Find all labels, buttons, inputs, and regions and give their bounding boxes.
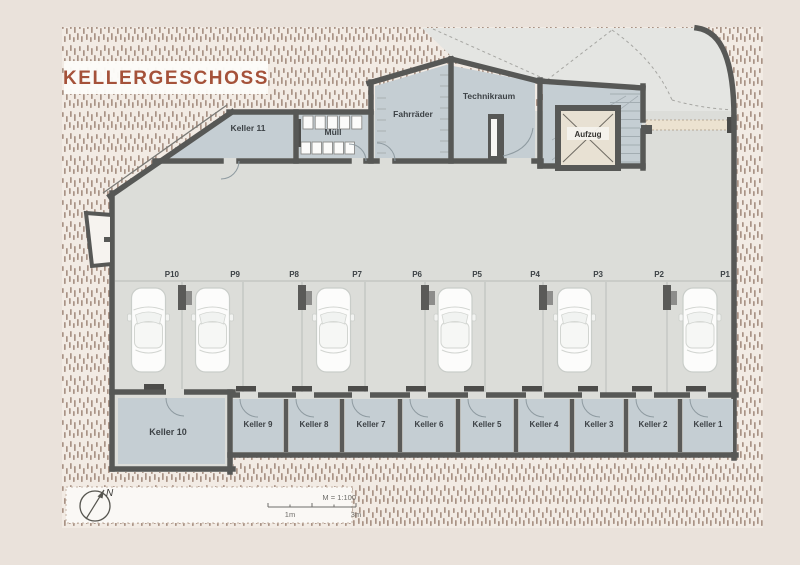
door-leaf xyxy=(348,386,368,392)
north-label: N xyxy=(106,488,114,499)
trash-bin-icon xyxy=(352,116,362,129)
door-leaf xyxy=(464,386,484,392)
door-leaf xyxy=(686,386,706,392)
keller-room-label: Keller 9 xyxy=(244,420,273,429)
trash-bin-icon xyxy=(323,142,333,154)
car-icon xyxy=(434,288,476,372)
keller-room-label: Keller 3 xyxy=(585,420,614,429)
car-icon xyxy=(128,288,170,372)
keller-room-label: Keller 8 xyxy=(300,420,329,429)
car-icon xyxy=(192,288,234,372)
stall-label-p1: P1 xyxy=(720,270,730,279)
stall-label-p10: P10 xyxy=(165,270,180,279)
keller-room-label: Keller 6 xyxy=(415,420,444,429)
scale-ratio-label: M = 1:100 xyxy=(322,493,356,502)
door-leaf xyxy=(632,386,652,392)
keller-room-label: Keller 1 xyxy=(694,420,723,429)
trash-bin-icon xyxy=(301,142,311,154)
keller-room-label: Keller 4 xyxy=(530,420,559,429)
light-well xyxy=(86,213,113,266)
scale-tick-3m: 3m xyxy=(351,510,361,519)
stall-label-p3: P3 xyxy=(593,270,603,279)
stall-label-p7: P7 xyxy=(352,270,362,279)
floor-plan-page: P10P9P8P7P6P5P4P3P2P1 xyxy=(0,0,800,565)
fahrraeder-label: Fahrräder xyxy=(393,109,433,119)
door-leaf xyxy=(522,386,542,392)
stall-label-p2: P2 xyxy=(654,270,664,279)
legend-strip: N M = 1:100 1m 3m xyxy=(66,487,361,523)
stall-label-p4: P4 xyxy=(530,270,540,279)
trash-bin-icon xyxy=(303,116,313,129)
aufzug-label: Aufzug xyxy=(574,130,601,139)
floor-plan-canvas: P10P9P8P7P6P5P4P3P2P1 xyxy=(0,0,800,565)
car-icon xyxy=(554,288,596,372)
keller10-label: Keller 10 xyxy=(149,427,187,437)
door-leaf xyxy=(406,386,426,392)
keller11-label: Keller 11 xyxy=(231,123,266,133)
title-box: KELLERGESCHOSS xyxy=(63,61,269,94)
muell-label: Müll xyxy=(325,127,342,137)
page-title: KELLERGESCHOSS xyxy=(63,68,269,89)
scale-tick-1m: 1m xyxy=(285,510,295,519)
door-leaf xyxy=(236,386,256,392)
trash-bin-icon xyxy=(312,142,322,154)
stall-label-p9: P9 xyxy=(230,270,240,279)
elevator: Aufzug xyxy=(558,108,618,168)
door-leaf xyxy=(292,386,312,392)
car-icon xyxy=(679,288,721,372)
technikraum-label: Technikraum xyxy=(463,91,516,101)
stall-label-p5: P5 xyxy=(472,270,482,279)
stall-label-p6: P6 xyxy=(412,270,422,279)
stall-label-p8: P8 xyxy=(289,270,299,279)
keller-room-label: Keller 7 xyxy=(357,420,386,429)
keller-room-label: Keller 2 xyxy=(639,420,668,429)
door-leaf xyxy=(578,386,598,392)
car-icon xyxy=(313,288,355,372)
keller-room-label: Keller 5 xyxy=(473,420,502,429)
trash-bin-icon xyxy=(334,142,344,154)
